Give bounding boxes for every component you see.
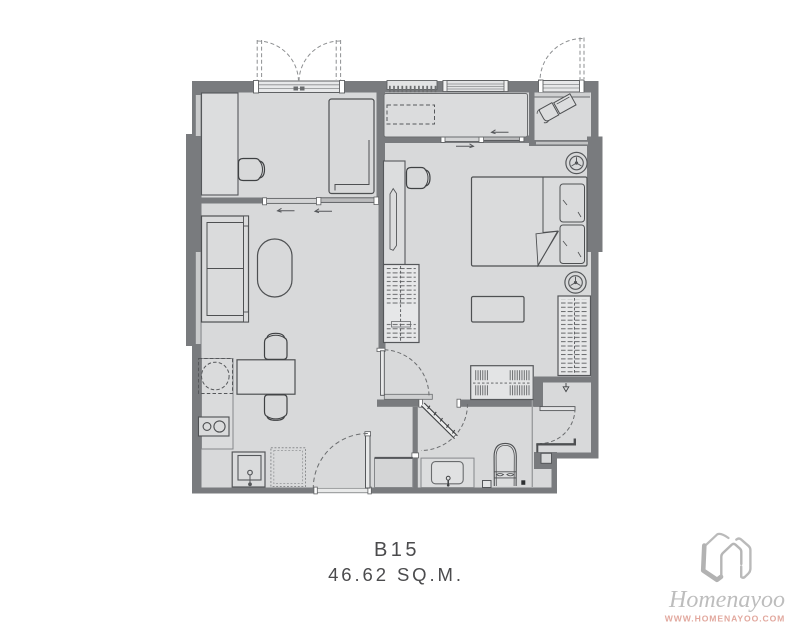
svg-text:WWW.HOMENAYOO.COM: WWW.HOMENAYOO.COM bbox=[665, 614, 786, 624]
svg-text:46.62 SQ.M.: 46.62 SQ.M. bbox=[328, 564, 464, 585]
svg-text:Homenayoo: Homenayoo bbox=[668, 587, 785, 613]
svg-text:B15: B15 bbox=[374, 539, 420, 561]
